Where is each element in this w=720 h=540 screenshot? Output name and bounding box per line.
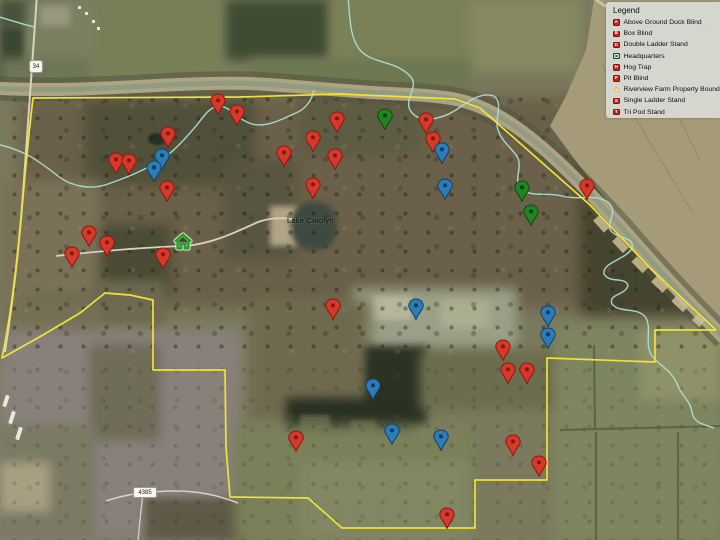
map-pin-blue[interactable] bbox=[365, 378, 381, 400]
map-pin-red[interactable] bbox=[329, 111, 345, 133]
map-pin-red[interactable] bbox=[325, 298, 341, 320]
map-pin-green[interactable] bbox=[514, 180, 530, 202]
road-4385-shield: 4385 bbox=[133, 487, 157, 498]
map-pin-red[interactable] bbox=[305, 130, 321, 152]
legend-item-label: Pit Blind bbox=[624, 75, 649, 82]
map-pin-red[interactable] bbox=[439, 507, 455, 529]
map-pin-red[interactable] bbox=[531, 455, 547, 477]
map-pin-red[interactable] bbox=[276, 145, 292, 167]
legend-item: DDouble Ladder Stand bbox=[613, 39, 720, 50]
map-pin-blue[interactable] bbox=[437, 178, 453, 200]
map-pin-red[interactable] bbox=[519, 362, 535, 384]
map-pin-red[interactable] bbox=[160, 126, 176, 148]
map-pin-red[interactable] bbox=[155, 247, 171, 269]
map-pin-blue[interactable] bbox=[540, 327, 556, 349]
legend-red-square-icon: B bbox=[613, 31, 620, 38]
lake-label: Lake Carolyn bbox=[287, 216, 334, 225]
legend-red-square-icon: T bbox=[613, 109, 620, 116]
map-pin-green[interactable] bbox=[523, 204, 539, 226]
map-pin-red[interactable] bbox=[210, 93, 226, 115]
legend-item-label: Tri Pod Stand bbox=[624, 109, 665, 116]
legend-item: TTri Pod Stand bbox=[613, 107, 720, 118]
legend-panel: Legend AAbove Ground Duck BlindBBox Blin… bbox=[606, 2, 720, 118]
map-pin-red[interactable] bbox=[81, 225, 97, 247]
map-pin-green[interactable] bbox=[377, 108, 393, 130]
legend-title: Legend bbox=[613, 6, 720, 15]
hedgerows bbox=[560, 345, 720, 540]
legend-headquarters-icon bbox=[613, 53, 620, 60]
map-pin-blue[interactable] bbox=[433, 429, 449, 451]
legend-items: AAbove Ground Duck BlindBBox BlindDDoubl… bbox=[613, 17, 720, 118]
legend-item: HHog Trap bbox=[613, 62, 720, 73]
legend-item-label: Single Ladder Stand bbox=[624, 97, 686, 104]
legend-item: AAbove Ground Duck Blind bbox=[613, 17, 720, 28]
map-pin-blue[interactable] bbox=[408, 298, 424, 320]
map-pin-red[interactable] bbox=[579, 178, 595, 200]
map-pin-red[interactable] bbox=[159, 180, 175, 202]
legend-red-square-icon: A bbox=[613, 19, 620, 26]
legend-red-square-icon: P bbox=[613, 75, 620, 82]
map-pin-blue[interactable] bbox=[540, 305, 556, 327]
map-pin-red[interactable] bbox=[505, 434, 521, 456]
legend-item-label: Double Ladder Stand bbox=[624, 41, 688, 48]
road-4385 bbox=[106, 491, 238, 503]
legend-red-square-icon: D bbox=[613, 42, 620, 49]
map-pin-red[interactable] bbox=[500, 362, 516, 384]
legend-item-label: Hog Trap bbox=[624, 64, 652, 71]
legend-red-square-icon: H bbox=[613, 64, 620, 71]
map-pin-blue[interactable] bbox=[434, 142, 450, 164]
legend-item-label: Box Blind bbox=[624, 30, 653, 37]
map-pin-blue[interactable] bbox=[384, 423, 400, 445]
map-pin-red[interactable] bbox=[327, 148, 343, 170]
legend-item: SSingle Ladder Stand bbox=[613, 95, 720, 106]
map-pin-red[interactable] bbox=[121, 153, 137, 175]
map-pin-red[interactable] bbox=[288, 430, 304, 452]
legend-item: PPit Blind bbox=[613, 73, 720, 84]
highway-34-shield: 34 bbox=[29, 60, 43, 73]
map-pin-red[interactable] bbox=[99, 235, 115, 257]
legend-boundary-polygon-icon bbox=[613, 86, 620, 93]
map-pin-red[interactable] bbox=[64, 246, 80, 268]
satellite-map[interactable]: Lake Carolyn 34 4385 Legend AAbove Groun… bbox=[0, 0, 720, 540]
map-pin-red[interactable] bbox=[495, 339, 511, 361]
legend-item-label: Above Ground Duck Blind bbox=[624, 19, 702, 26]
legend-item: BBox Blind bbox=[613, 28, 720, 39]
legend-item-label: Riverview Farm Property Boundary bbox=[624, 86, 720, 93]
legend-red-square-icon: S bbox=[613, 98, 620, 105]
legend-item: Riverview Farm Property Boundary bbox=[613, 84, 720, 95]
map-pin-red[interactable] bbox=[305, 177, 321, 199]
headquarters-icon[interactable] bbox=[172, 231, 194, 253]
road-left bbox=[5, 0, 37, 352]
map-pin-blue[interactable] bbox=[146, 160, 162, 182]
legend-item: Headquarters bbox=[613, 51, 720, 62]
road-4385-branch bbox=[138, 492, 143, 540]
map-pin-red[interactable] bbox=[229, 104, 245, 126]
legend-item-label: Headquarters bbox=[624, 53, 665, 60]
